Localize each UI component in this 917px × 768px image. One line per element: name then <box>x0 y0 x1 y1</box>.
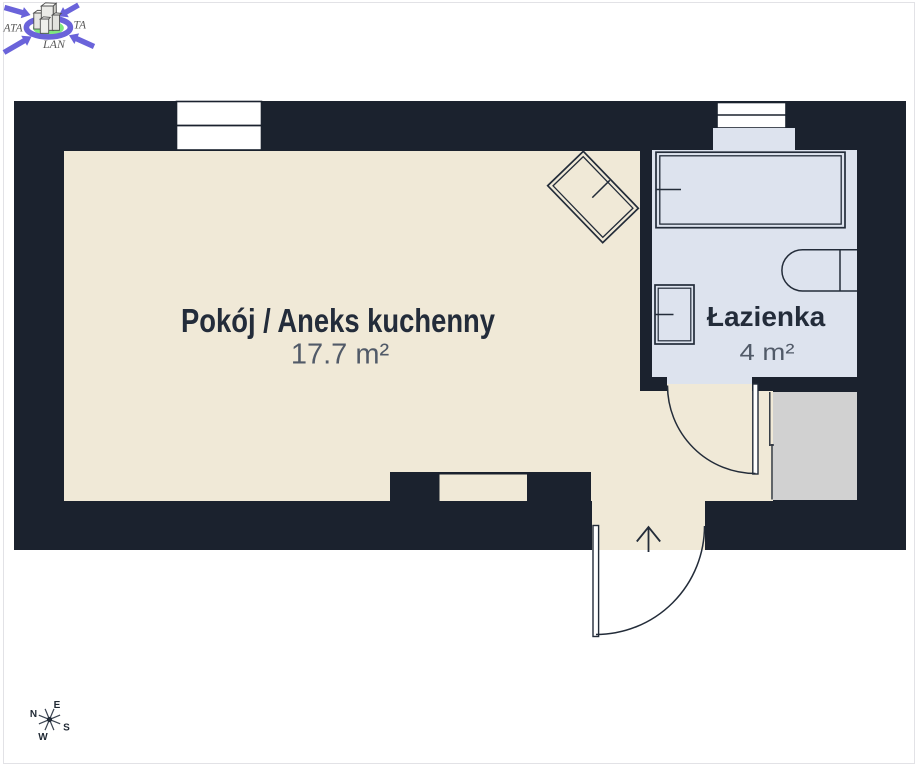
svg-text:LAN: LAN <box>42 37 66 51</box>
svg-text:E: E <box>54 700 61 711</box>
svg-text:4 m²: 4 m² <box>740 339 795 365</box>
svg-text:Pokój / Aneks kuchenny: Pokój / Aneks kuchenny <box>181 302 496 339</box>
svg-text:W: W <box>38 732 48 743</box>
svg-text:ATA: ATA <box>3 23 24 35</box>
svg-text:S: S <box>63 723 70 734</box>
svg-text:17.7 m²: 17.7 m² <box>291 339 390 371</box>
svg-text:TA: TA <box>74 20 88 32</box>
svg-text:N: N <box>30 709 37 720</box>
svg-text:Łazienka: Łazienka <box>707 301 826 332</box>
